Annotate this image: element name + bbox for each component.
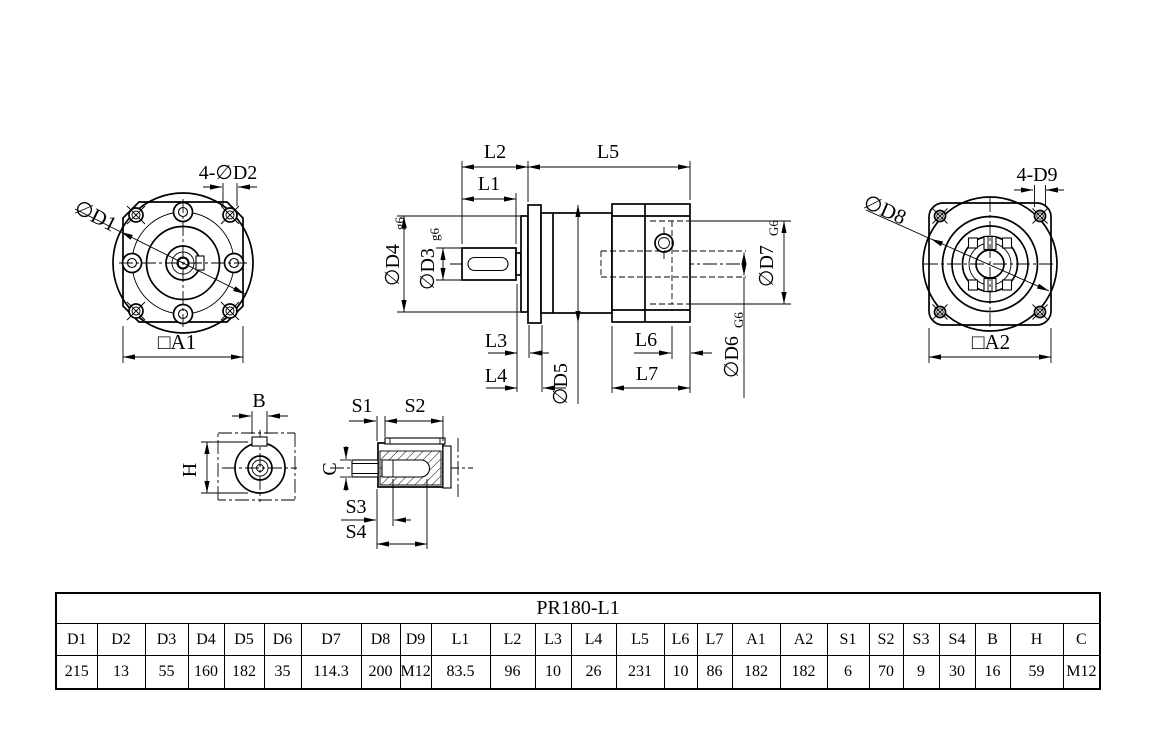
col-header: L3 — [535, 624, 571, 656]
col-header: L6 — [664, 624, 697, 656]
dim-value: 182 — [732, 656, 780, 690]
col-header: D6 — [264, 624, 301, 656]
dim-value: 6 — [827, 656, 869, 690]
dim-value: 86 — [697, 656, 732, 690]
col-header: S4 — [939, 624, 975, 656]
col-header: C — [1063, 624, 1100, 656]
label-a2: □A2 — [972, 330, 1010, 354]
dim-value: 182 — [780, 656, 827, 690]
dim-value: 83.5 — [431, 656, 490, 690]
col-header: L1 — [431, 624, 490, 656]
dim-b: B — [232, 390, 288, 434]
dim-value: 114.3 — [301, 656, 361, 690]
col-header: A2 — [780, 624, 827, 656]
dimension-table: PR180-L1 D1 D2 D3 D4 D5 D6 D7 D8 D9 L1 L… — [55, 592, 1101, 690]
mount-flange — [528, 205, 541, 323]
dim-value: 182 — [224, 656, 264, 690]
col-header: L7 — [697, 624, 732, 656]
dim-value: 30 — [939, 656, 975, 690]
col-header: D8 — [361, 624, 400, 656]
col-header: S1 — [827, 624, 869, 656]
shaft-detail: S1 S2 C S3 S4 — [319, 395, 473, 549]
dim-value: 96 — [490, 656, 535, 690]
dim-value: 55 — [145, 656, 188, 690]
table-value-row: 215 13 55 160 182 35 114.3 200 M12 83.5 … — [56, 656, 1100, 690]
col-header: A1 — [732, 624, 780, 656]
dim-a2: □A2 — [929, 328, 1051, 363]
table-header-row: D1 D2 D3 D4 D5 D6 D7 D8 D9 L1 L2 L3 L4 L… — [56, 624, 1100, 656]
label-d3: ∅D3 — [417, 248, 439, 290]
dim-value: 59 — [1010, 656, 1063, 690]
dim-c: C — [319, 446, 351, 491]
dim-value: 35 — [264, 656, 301, 690]
label-d9: 4-D9 — [1016, 164, 1057, 186]
dim-d1: ∅D1 — [71, 195, 245, 294]
label-s2: S2 — [404, 395, 425, 417]
drawing-sheet: ∅D1 4-∅D2 □A1 — [0, 0, 1156, 737]
label-l7: L7 — [636, 363, 658, 385]
label-l3: L3 — [485, 330, 507, 352]
dim-d6: ∅D6 G6 — [721, 253, 746, 399]
label-d6: ∅D6 — [721, 336, 743, 378]
col-header: H — [1010, 624, 1063, 656]
col-header: L2 — [490, 624, 535, 656]
label-d7-fit: G6 — [766, 220, 781, 236]
dim-l5: L5 — [528, 141, 690, 200]
col-header: D2 — [97, 624, 145, 656]
dim-value: 13 — [97, 656, 145, 690]
dim-value: 215 — [56, 656, 97, 690]
dim-value: 70 — [869, 656, 903, 690]
label-s1: S1 — [351, 395, 372, 417]
threaded-hole — [382, 460, 430, 477]
label-d7: ∅D7 — [756, 245, 778, 287]
label-a1: □A1 — [158, 330, 196, 354]
dim-d3: ∅D3 g6 — [417, 228, 461, 290]
dim-d9: 4-D9 — [1014, 164, 1064, 207]
dim-value: 16 — [975, 656, 1010, 690]
shaft-keyway — [468, 258, 508, 271]
dim-value: 200 — [361, 656, 400, 690]
label-d4: ∅D4 — [382, 244, 404, 286]
label-d5: ∅D5 — [550, 363, 572, 405]
dim-value: 231 — [616, 656, 664, 690]
col-header: S2 — [869, 624, 903, 656]
col-header: S3 — [903, 624, 939, 656]
key-on-shaft — [385, 438, 445, 444]
spigot — [521, 216, 528, 312]
col-header: L4 — [571, 624, 616, 656]
dim-s1: S1 — [349, 395, 385, 441]
dim-l6: L6 — [634, 326, 712, 359]
dim-h: H — [179, 442, 248, 493]
label-b: B — [252, 390, 265, 412]
label-d2: 4-∅D2 — [199, 162, 258, 184]
dim-value: 160 — [188, 656, 224, 690]
side-view: L2 L5 L1 ∅D4 g6 ∅D3 g6 ∅ — [382, 141, 791, 405]
dim-a1: □A1 — [123, 326, 243, 363]
label-l6: L6 — [635, 329, 657, 351]
label-d1: ∅D1 — [71, 195, 121, 236]
table-title: PR180-L1 — [56, 593, 1100, 624]
dim-s2: S2 — [385, 395, 443, 441]
dim-value: 10 — [664, 656, 697, 690]
label-d6-fit: G6 — [731, 312, 746, 328]
col-header: D3 — [145, 624, 188, 656]
dim-value: 9 — [903, 656, 939, 690]
dim-d7: ∅D7 G6 — [691, 220, 791, 304]
label-d3-fit: g6 — [427, 228, 442, 242]
dim-value: 26 — [571, 656, 616, 690]
label-d8: ∅D8 — [860, 190, 910, 230]
section-view: B H — [179, 390, 297, 502]
label-s4: S4 — [345, 521, 366, 543]
dim-value: 10 — [535, 656, 571, 690]
label-c: C — [319, 462, 341, 475]
col-header: D1 — [56, 624, 97, 656]
label-d4-fit: g6 — [392, 217, 407, 231]
dim-l1: L1 — [462, 173, 516, 244]
dim-value: M12 — [1063, 656, 1100, 690]
label-l1: L1 — [478, 173, 500, 195]
rear-view: ∅D8 4-D9 □A2 — [860, 164, 1064, 363]
label-l2: L2 — [484, 141, 506, 163]
col-header: B — [975, 624, 1010, 656]
label-l5: L5 — [597, 141, 619, 163]
col-header: D7 — [301, 624, 361, 656]
col-header: D5 — [224, 624, 264, 656]
label-l4: L4 — [485, 365, 507, 387]
dim-value: M12 — [400, 656, 431, 690]
col-header: L5 — [616, 624, 664, 656]
front-view: ∅D1 4-∅D2 □A1 — [71, 162, 258, 363]
dim-d2: 4-∅D2 — [199, 162, 258, 206]
thread-stub — [352, 460, 378, 477]
col-header: D9 — [400, 624, 431, 656]
label-s3: S3 — [345, 496, 366, 518]
label-h: H — [179, 463, 201, 477]
section-keyway — [252, 437, 267, 446]
col-header: D4 — [188, 624, 224, 656]
